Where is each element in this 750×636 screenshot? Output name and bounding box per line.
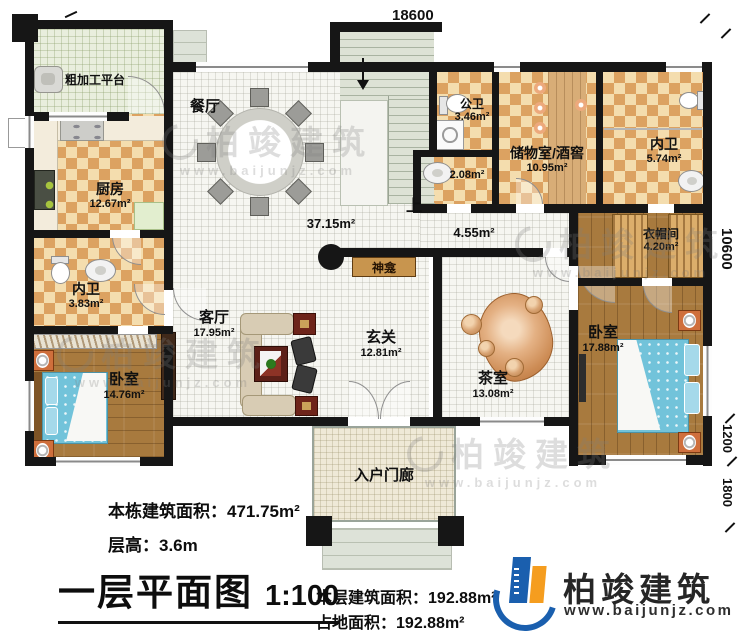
window <box>494 62 520 72</box>
dining-chair <box>305 143 324 162</box>
tv-panel <box>579 354 586 402</box>
brand-logo-icon <box>492 554 560 626</box>
shrine-cabinet: 神龛 <box>352 257 416 277</box>
nightstand <box>678 310 701 331</box>
door-gap <box>648 204 674 213</box>
dimension-tick <box>700 13 711 24</box>
room-label-bedroom-left: 卧室 14.76m² <box>104 372 145 401</box>
tea-stool <box>525 296 543 314</box>
door-gap <box>110 230 140 238</box>
wall <box>164 20 173 237</box>
room-label-porch: 入户门廊 <box>354 468 414 485</box>
dimension-right-bottom: 1800 <box>720 478 735 507</box>
porch-steps <box>322 528 452 570</box>
logo-building-windows <box>514 564 519 594</box>
wall <box>164 345 173 457</box>
floor-area-label: 本层建筑面积： <box>316 590 428 607</box>
room-label-foyer: 玄关 12.81m² <box>361 330 402 359</box>
room-label-bedroom-right: 卧室 17.88m² <box>583 325 624 354</box>
prep-sink-basin <box>41 73 55 85</box>
area-label-hallway: 4.55m² <box>453 226 494 241</box>
window <box>56 457 140 466</box>
area-label-small-bath: 2.08m² <box>450 169 485 181</box>
dimension-right: 10600 <box>718 228 735 270</box>
area-label-open: 37.15m² <box>307 217 355 232</box>
window <box>25 381 34 431</box>
wall <box>413 150 493 157</box>
wall <box>578 278 704 286</box>
window <box>606 455 686 465</box>
shrine-label: 神龛 <box>372 259 396 276</box>
floor-area-stat: 本层建筑面积：192.88m² <box>316 584 497 608</box>
sink <box>678 170 705 192</box>
sink <box>423 162 452 184</box>
porch-column <box>306 516 332 546</box>
toilet <box>679 92 699 109</box>
nightstand <box>678 432 701 453</box>
door-gap <box>447 204 471 213</box>
sofa-top-seat <box>240 313 294 335</box>
bay-window-box <box>8 118 26 148</box>
dining-chair <box>250 197 269 216</box>
tea-stool <box>461 314 482 335</box>
end-table <box>293 313 316 335</box>
room-label-prep: 粗加工平台 <box>65 74 125 87</box>
window <box>480 417 544 426</box>
storage-shelf-band <box>548 72 586 204</box>
floor-area-value: 192.88m² <box>428 590 497 607</box>
floor-height-label: 层高： <box>108 536 159 555</box>
brand-url: www.baijunjz.com <box>564 602 733 619</box>
wall <box>330 248 570 257</box>
dimension-tick <box>721 28 732 39</box>
gas-stove <box>34 170 55 210</box>
plan-title: 一层平面图 1:100 <box>58 562 339 624</box>
ceiling-lamp <box>534 82 546 94</box>
stair-arrow-head <box>357 80 369 90</box>
coffee-table <box>254 346 288 382</box>
room-label-ensuite-top: 内卫 5.74m² <box>647 137 682 165</box>
stairs-up-label: 上 <box>406 198 422 216</box>
wall <box>25 230 173 238</box>
tea-stool <box>478 340 495 357</box>
plan-title-text: 一层平面图 <box>58 562 253 616</box>
end-table <box>295 396 318 416</box>
bed-headboard <box>33 372 42 442</box>
window <box>49 112 107 121</box>
dimension-tick <box>727 456 738 467</box>
column <box>318 244 344 270</box>
wall <box>429 72 437 156</box>
window <box>25 116 34 148</box>
wall <box>107 112 129 121</box>
pillow <box>45 377 58 405</box>
floor-height-value: 3.6m <box>159 536 198 555</box>
footprint-stat: 占地面积：192.88m² <box>316 609 465 633</box>
nightstand <box>31 350 54 371</box>
sink <box>85 259 116 282</box>
wall <box>596 72 603 211</box>
building-area-value: 471.75m² <box>227 502 300 521</box>
wall <box>25 326 173 334</box>
room-label-cloakroom: 衣帽间 4.20m² <box>643 228 679 254</box>
door-gap <box>118 326 148 334</box>
wall <box>25 20 173 29</box>
fridge <box>134 202 164 230</box>
window <box>703 346 712 416</box>
pillow <box>684 344 700 376</box>
wall <box>433 257 442 423</box>
dining-chair <box>250 88 269 107</box>
building-area-stat: 本栋建筑面积：471.75m² <box>108 497 300 522</box>
wardrobe <box>33 334 157 349</box>
pillow <box>45 407 58 435</box>
wall <box>164 417 348 426</box>
room-label-public-bath: 公卫 3.46m² <box>455 98 490 124</box>
room-label-living: 客厅 17.95m² <box>194 310 235 339</box>
dimension-tick <box>725 522 736 533</box>
floor-plan-page: 神龛 粗加工平台 厨房 12.67m² 餐厅 37.15m² 4.55m² 公卫… <box>0 0 750 636</box>
room-label-kitchen: 厨房 12.67m² <box>90 182 131 210</box>
sofa-bottom-seat <box>242 395 296 416</box>
prep-sink <box>34 66 63 93</box>
room-label-storage: 储物室/酒窖 10.95m² <box>510 146 584 174</box>
footprint-value: 192.88m² <box>396 615 465 632</box>
building-area-label: 本栋建筑面积： <box>108 502 227 521</box>
room-label-ensuite-left: 内卫 3.83m² <box>69 282 104 310</box>
footprint-label: 占地面积： <box>316 615 396 632</box>
dining-table <box>216 108 304 196</box>
dimension-top: 18600 <box>392 7 434 24</box>
dimension-tick <box>65 11 78 18</box>
door-gap <box>516 204 544 213</box>
window <box>666 62 702 72</box>
pillow <box>684 382 700 414</box>
plant <box>266 359 276 369</box>
ceiling-lamp <box>575 99 587 111</box>
floor-height-stat: 层高：3.6m <box>108 531 198 556</box>
washing-machine <box>436 120 464 150</box>
toilet <box>51 262 70 284</box>
wall <box>569 204 578 466</box>
window <box>196 62 308 72</box>
room-label-tea: 茶室 13.08m² <box>473 371 514 400</box>
ceiling-lamp <box>534 122 546 134</box>
ceiling-lamp <box>534 102 546 114</box>
bath-divider-line <box>604 128 702 130</box>
wall <box>330 22 340 68</box>
door-gap <box>642 278 672 286</box>
porch-column <box>438 516 464 546</box>
dining-chair <box>197 143 216 162</box>
door-gap <box>569 266 578 310</box>
wall <box>492 72 499 211</box>
room-label-dining: 餐厅 <box>190 99 220 116</box>
dimension-right-mid: 1200 <box>720 424 735 453</box>
stair-landing <box>340 100 388 206</box>
dimension-tick <box>725 413 736 424</box>
wall <box>164 237 173 290</box>
door-gap <box>543 248 567 257</box>
